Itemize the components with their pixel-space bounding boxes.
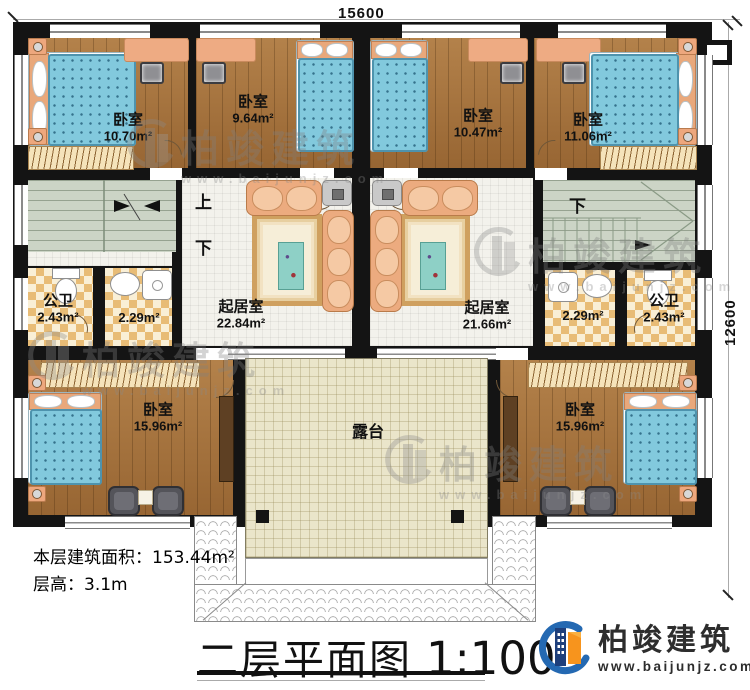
- sofa: [322, 210, 354, 312]
- label-bedroom-top-mid-left: 卧室 9.64m²: [232, 95, 273, 126]
- mattress: [298, 58, 354, 152]
- pillow: [400, 43, 422, 57]
- desk: [124, 38, 189, 62]
- door-opening: [196, 348, 228, 360]
- brand-name: 柏竣建筑: [598, 626, 750, 656]
- label-bathroom-right: 公卫 2.43m²: [643, 294, 684, 325]
- computer: [202, 62, 226, 84]
- wardrobe: [40, 362, 200, 388]
- label-bedroom-bottom-left: 卧室 15.96m²: [134, 403, 182, 434]
- label-bedroom-top-right: 卧室 11.06m²: [564, 113, 612, 144]
- label-bathroom-left: 公卫 2.43m²: [37, 294, 78, 325]
- cushion: [252, 186, 283, 211]
- top-dimension-line: [13, 19, 740, 20]
- bed: [370, 40, 428, 152]
- mattress: [625, 409, 697, 485]
- label-terrace: 露台: [352, 424, 384, 442]
- window: [697, 398, 713, 478]
- stair-down-label-right: 下: [569, 192, 586, 217]
- nightstand: [678, 38, 697, 55]
- label-bedroom-top-mid-right: 卧室 10.47m²: [454, 109, 502, 140]
- stair-up-label: 上: [195, 188, 212, 213]
- nightstand: [679, 375, 697, 391]
- title-underline: [197, 671, 485, 675]
- shower-tray: [548, 272, 578, 302]
- roof-tiles: [194, 584, 536, 622]
- terrace-step: [245, 558, 488, 586]
- label-living-right: 起居室 21.66m²: [463, 301, 511, 332]
- label-washroom-left: 2.29m²: [118, 311, 159, 325]
- title-text: 二层平面图: [197, 626, 412, 686]
- terrace-floor: [245, 358, 488, 558]
- pillow: [326, 43, 348, 57]
- wardrobe: [528, 362, 688, 388]
- bed: [28, 392, 102, 484]
- tv-cabinet: [219, 396, 234, 482]
- brand-logo: 柏竣建筑 www.baijunjz.com: [534, 620, 750, 680]
- side-table: [570, 490, 585, 505]
- tv-cabinet: [503, 396, 518, 482]
- nightstand: [28, 38, 47, 55]
- brand-url: www.baijunjz.com: [598, 659, 750, 674]
- window: [65, 516, 190, 529]
- pillow: [67, 395, 95, 408]
- column-post: [451, 510, 464, 523]
- cushion: [327, 216, 351, 244]
- brand-logo-icon: [534, 620, 592, 680]
- cushion: [442, 186, 473, 211]
- bed: [623, 392, 697, 484]
- nightstand: [28, 486, 46, 502]
- tv-corner-unit: [322, 180, 352, 206]
- title-underline-thin: [197, 680, 485, 681]
- cushion: [408, 186, 439, 211]
- desk: [196, 38, 256, 62]
- loveseat: [246, 180, 322, 216]
- floor-height-note: 层高：3.1m: [33, 570, 128, 595]
- dimension-tick: [7, 11, 18, 22]
- floor-plan-canvas: 15600 12600: [0, 0, 750, 690]
- wardrobe: [600, 146, 697, 170]
- pillow: [34, 395, 62, 408]
- pillow: [678, 61, 693, 97]
- mattress: [372, 58, 428, 152]
- drawing-title: 二层平面图 1:100: [197, 626, 556, 686]
- bed: [296, 40, 354, 152]
- stairs-right-detail: [543, 180, 695, 262]
- cushion: [286, 186, 317, 211]
- label-bedroom-top-left: 卧室 10.70m²: [104, 113, 152, 144]
- pillow: [301, 43, 323, 57]
- window: [697, 55, 713, 145]
- desk: [468, 38, 528, 62]
- computer: [562, 62, 586, 84]
- cushion: [327, 280, 351, 308]
- side-table: [138, 490, 153, 505]
- sink: [582, 274, 612, 298]
- floor-area-note: 本层建筑面积：153.44m²: [33, 543, 235, 568]
- nightstand: [678, 128, 697, 145]
- column-post: [256, 510, 269, 523]
- cushion: [327, 248, 351, 276]
- stair-down-label-left: 下: [195, 234, 212, 259]
- loveseat: [402, 180, 478, 216]
- mattress: [30, 409, 102, 485]
- sofa: [370, 210, 402, 312]
- window: [697, 185, 713, 250]
- nightstand: [28, 375, 46, 391]
- sink: [110, 272, 140, 296]
- window: [547, 516, 672, 529]
- stairs-left-detail: [28, 180, 176, 252]
- shower-tray: [142, 270, 172, 300]
- pillow: [32, 61, 47, 97]
- dimension-tick: [731, 15, 742, 26]
- hallway-left: [28, 252, 172, 266]
- nightstand: [679, 486, 697, 502]
- cushion: [375, 248, 399, 276]
- wardrobe: [28, 146, 134, 170]
- label-washroom-right: 2.29m²: [562, 309, 603, 323]
- computer: [140, 62, 164, 84]
- door-opening: [496, 348, 528, 360]
- right-dimension-label: 12600: [722, 299, 739, 346]
- coffee-table: [278, 242, 304, 290]
- chair: [108, 486, 140, 516]
- pillow: [629, 395, 657, 408]
- chair: [152, 486, 184, 516]
- pillow: [375, 43, 397, 57]
- label-living-left: 起居室 22.84m²: [217, 300, 265, 331]
- cushion: [375, 216, 399, 244]
- tv-corner-unit: [372, 180, 402, 206]
- chair: [540, 486, 572, 516]
- party-wall-cap: [323, 22, 400, 33]
- window: [697, 278, 713, 330]
- coffee-table: [420, 242, 446, 290]
- cushion: [375, 280, 399, 308]
- chair: [584, 486, 616, 516]
- computer: [500, 62, 524, 84]
- label-bedroom-bottom-right: 卧室 15.96m²: [556, 403, 604, 434]
- pillow: [662, 395, 690, 408]
- nightstand: [28, 128, 47, 145]
